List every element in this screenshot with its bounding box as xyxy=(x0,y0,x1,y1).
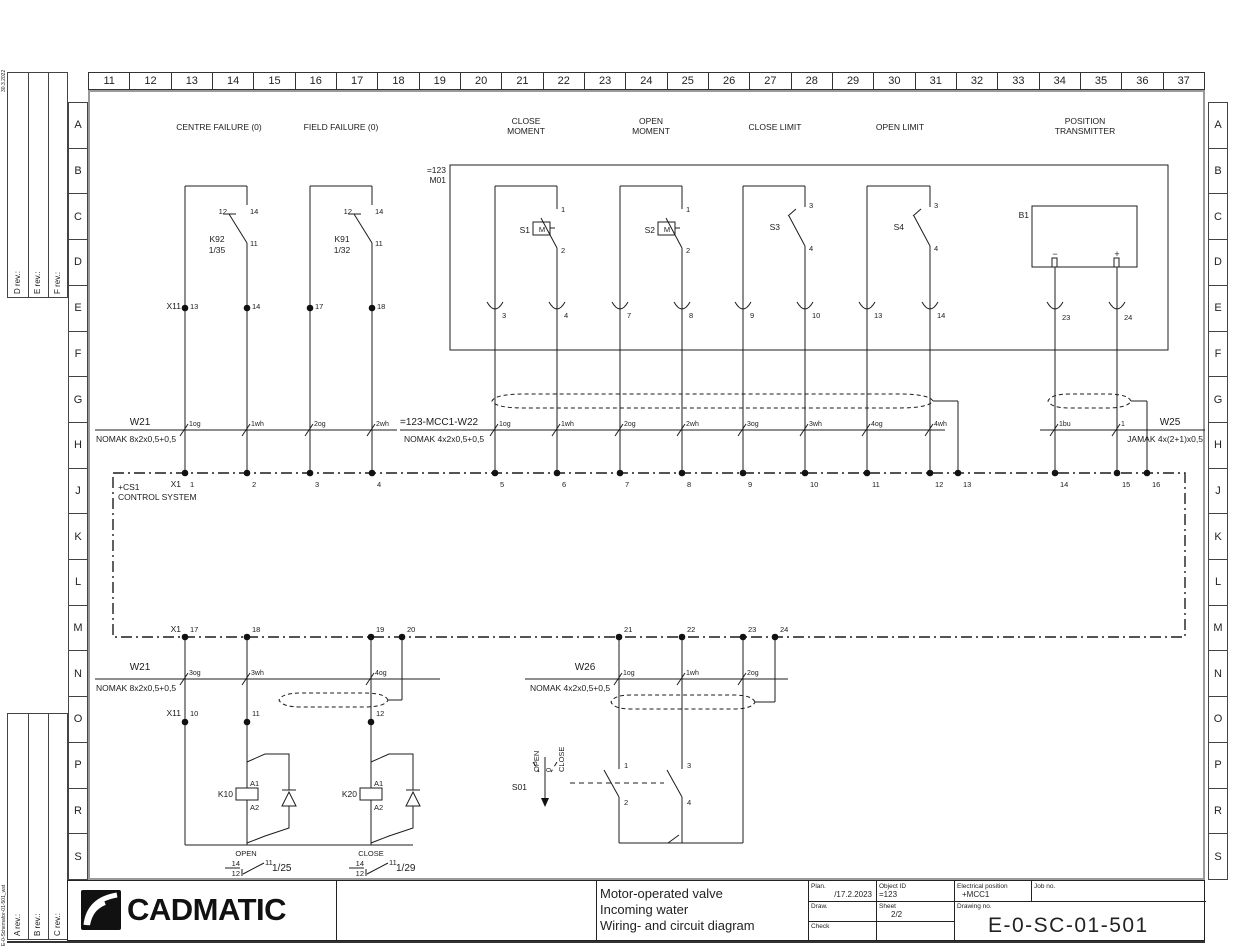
diagram-label: + xyxy=(1114,249,1119,259)
divider xyxy=(596,881,597,942)
k10-coil xyxy=(236,788,258,800)
diagram-label: S2 xyxy=(645,225,656,235)
diagram-label: 18 xyxy=(252,625,260,634)
diagram-label: F rev.: xyxy=(53,272,62,294)
s4-switch xyxy=(867,186,930,292)
terminal-dot xyxy=(369,305,376,312)
divider xyxy=(808,901,1206,902)
diagram-label: 3 xyxy=(934,201,938,210)
diagram-label: 12 xyxy=(232,869,240,878)
diagram-label: 2og xyxy=(314,421,326,428)
diagram-label: 4 xyxy=(809,244,813,253)
control-system-boundary xyxy=(113,473,1185,637)
diagram-label: B1 xyxy=(1019,210,1030,220)
diagram-label: C rev.: xyxy=(53,913,62,936)
diagram-label: 1/29 xyxy=(396,863,416,874)
diagram-label: OPEN xyxy=(639,116,663,126)
diagram-label: A2 xyxy=(374,803,383,812)
diagram-label: S3 xyxy=(770,222,781,232)
terminal-dot xyxy=(244,719,251,726)
diagram-label: 4 xyxy=(564,311,568,320)
diagram-label: 7 xyxy=(625,480,629,489)
diagram-label: NOMAK 8x2x0,5+0,5 xyxy=(96,683,176,693)
diagram-label: 14 xyxy=(250,207,258,216)
terminal-dot xyxy=(182,470,189,477)
diagram-label: CONTROL SYSTEM xyxy=(118,492,197,502)
diagram-label: 3og xyxy=(189,670,201,677)
divider xyxy=(1031,881,1032,901)
lower-wiring xyxy=(185,637,743,845)
b1-leads xyxy=(1055,267,1117,292)
diagram-label: FIELD FAILURE (0) xyxy=(304,122,379,132)
diagram-label: 15 xyxy=(1122,480,1130,489)
diagram-label: X11 xyxy=(167,301,182,311)
sheet-value: 2/2 xyxy=(891,910,902,919)
diagram-label: 4og xyxy=(871,421,883,428)
diagram-label: 13 xyxy=(190,302,198,311)
cadmatic-logo: CADMATIC xyxy=(81,890,286,930)
diagram-label: 10 xyxy=(190,709,198,718)
diagram-label: 16 xyxy=(1152,480,1160,489)
diagram-label: 13 xyxy=(963,480,971,489)
diagram-label: 2 xyxy=(561,246,565,255)
diagram-label: W25 xyxy=(1160,417,1181,428)
diagram-label: CLOSE xyxy=(512,116,541,126)
diagram-label: 4 xyxy=(377,480,381,489)
diagram-label: E rev.: xyxy=(33,271,42,294)
diagram-label: 20 xyxy=(407,625,415,634)
diagram-label: B rev.: xyxy=(33,913,42,936)
k20-diode-branch xyxy=(371,754,413,843)
diagram-label: MOMENT xyxy=(632,126,670,136)
cadmatic-logo-icon xyxy=(81,890,121,930)
diagram-label: 0 xyxy=(544,768,553,772)
diagram-label: 7 xyxy=(627,311,631,320)
drawing-no-value: E-0-SC-01-501 xyxy=(988,914,1149,938)
s2-switch xyxy=(620,186,682,292)
diagram-label: 2 xyxy=(686,246,690,255)
diagram-label: 3 xyxy=(687,761,691,770)
diagram-label: 14 xyxy=(375,207,383,216)
diagram-label: POSITION xyxy=(1065,116,1106,126)
diagram-label: 17 xyxy=(190,625,198,634)
diagram-label: 1wh xyxy=(686,670,699,677)
terminal-dot xyxy=(307,470,314,477)
diagram-label: A rev.: xyxy=(13,914,22,936)
k10-diode-triangle xyxy=(282,792,296,806)
diagram-label: 23 xyxy=(748,625,756,634)
diagram-label: 19 xyxy=(376,625,384,634)
diagram-label: CLOSE LIMIT xyxy=(749,122,802,132)
diagram-label: 1 xyxy=(686,205,690,214)
diagram-label: 11 xyxy=(250,239,258,248)
diagram-label: 1 xyxy=(190,480,194,489)
diagram-label: W26 xyxy=(575,662,596,673)
diagram-label: 2 xyxy=(624,798,628,807)
s01-lever-arrowhead xyxy=(541,798,549,807)
terminal-dot xyxy=(772,634,779,641)
diagram-label: =123 xyxy=(427,165,446,175)
diagram-label: JAMAK 4x(2+1)x0,5 xyxy=(1127,434,1203,444)
diagram-label: 2wh xyxy=(376,421,389,428)
diagram-label: 14 xyxy=(356,859,364,868)
terminal-dot xyxy=(368,719,375,726)
diagram-label: 24 xyxy=(1124,313,1132,322)
motor-unit-box xyxy=(450,165,1168,350)
diagram-label: 8 xyxy=(689,311,693,320)
diagram-label: 1og xyxy=(623,670,635,677)
diagram-label: +CS1 xyxy=(118,482,140,492)
w21-lower-shield xyxy=(279,693,388,707)
diagram-label: 24 xyxy=(780,625,788,634)
diagram-labels: CENTRE FAILURE (0)FIELD FAILURE (0)CLOSE… xyxy=(1,70,1203,946)
diagram-label: 14 xyxy=(937,311,945,320)
diagram-label: 3 xyxy=(809,201,813,210)
diagram-label: 22 xyxy=(687,625,695,634)
diagram-label: 14 xyxy=(252,302,260,311)
diagram-label: 8 xyxy=(687,480,691,489)
circuit-schematic: CENTRE FAILURE (0)FIELD FAILURE (0)CLOSE… xyxy=(0,0,1240,949)
diagram-label: X1 xyxy=(171,479,182,489)
diagram-label: NOMAK 4x2x0,5+0,5 xyxy=(404,434,484,444)
diagram-label: 1 xyxy=(624,761,628,770)
draw-label: Draw. xyxy=(811,903,828,910)
diagram-label: 3 xyxy=(502,311,506,320)
terminal-dot xyxy=(368,634,375,641)
electrical-position-label: Electrical position xyxy=(957,883,1008,890)
diagram-label: 10 xyxy=(810,480,818,489)
diagram-label: 1/25 xyxy=(272,863,292,874)
diagram-label: =123-MCC1-W22 xyxy=(400,417,479,428)
diagram-label: 1 xyxy=(561,205,565,214)
s01-return-bus xyxy=(619,835,743,843)
diagram-label: 9 xyxy=(748,480,752,489)
divider xyxy=(336,881,337,942)
diagram-label: 30.3.2022 xyxy=(1,70,7,92)
drawing-description: Motor-operated valveIncoming waterWiring… xyxy=(600,886,755,934)
diagram-label: CLOSE xyxy=(557,747,566,772)
sheet-label: Sheet xyxy=(879,903,896,910)
plan-label: Plan. xyxy=(811,883,826,890)
diagram-label: 11 xyxy=(375,239,383,248)
diagram-label: 4 xyxy=(687,798,691,807)
diagram-label: D rev.: xyxy=(13,271,22,294)
plan-value: /17.2.2023 xyxy=(808,890,872,899)
diagram-label: 3og xyxy=(747,421,759,428)
diagram-label: OPEN xyxy=(235,849,256,858)
diagram-label: 1/32 xyxy=(334,245,351,255)
diagram-label: 14 xyxy=(232,859,240,868)
k20-coil xyxy=(360,788,382,800)
w25-shield xyxy=(1048,394,1131,408)
terminal-dot xyxy=(182,305,189,312)
diagram-label: 3wh xyxy=(809,421,822,428)
drawing-no-label: Drawing no. xyxy=(957,903,992,910)
terminal-dot xyxy=(307,305,314,312)
diagram-label: 11 xyxy=(252,709,260,718)
diagram-label: 11 xyxy=(872,480,880,489)
diagram-label: 12 xyxy=(344,207,352,216)
generated-geometry xyxy=(180,291,1150,725)
diagram-label: 4og xyxy=(375,670,387,677)
diagram-label: 13 xyxy=(874,311,882,320)
w22-shield-drain xyxy=(933,401,958,473)
terminal-dot xyxy=(369,470,376,477)
diagram-label: 4wh xyxy=(934,421,947,428)
description-line: Incoming water xyxy=(600,902,755,918)
diagram-label: 1wh xyxy=(251,421,264,428)
terminal-dot xyxy=(182,634,189,641)
diagram-label: 10 xyxy=(812,311,820,320)
divider xyxy=(876,881,877,942)
diagram-label: − xyxy=(1052,249,1057,259)
description-line: Wiring- and circuit diagram xyxy=(600,918,755,934)
diagram-label: 3wh xyxy=(251,670,264,677)
diagram-label: OPEN LIMIT xyxy=(876,122,924,132)
object-id-value: =123 xyxy=(879,890,897,899)
sheet-bottom-edge xyxy=(7,941,1205,943)
k10-diode-branch xyxy=(247,754,289,843)
s1-switch xyxy=(495,186,557,292)
terminal-dot xyxy=(679,634,686,641)
diagram-label: 12 xyxy=(935,480,943,489)
diagram-label: M xyxy=(539,225,545,234)
diagram-label: 4 xyxy=(934,244,938,253)
diagram-label: 12 xyxy=(219,207,227,216)
terminal-dot xyxy=(244,305,251,312)
diagram-label: M xyxy=(664,225,670,234)
diagram-label: NOMAK 4x2x0,5+0,5 xyxy=(530,683,610,693)
diagram-label: S1 xyxy=(520,225,531,235)
k20-diode-triangle xyxy=(406,792,420,806)
object-id-label: Object ID xyxy=(879,883,906,890)
terminal-dot xyxy=(955,470,962,477)
diagram-label: A2 xyxy=(250,803,259,812)
diagram-label: 1/35 xyxy=(209,245,226,255)
diagram-label: 1og xyxy=(499,421,511,428)
divider xyxy=(808,921,954,922)
diagram-label: A1 xyxy=(250,779,259,788)
diagram-label: 18 xyxy=(377,302,385,311)
diagram-label: 21 xyxy=(624,625,632,634)
w21-lower-shield-drain xyxy=(388,637,402,700)
diagram-label: X1 xyxy=(171,624,182,634)
diagram-label: A1 xyxy=(374,779,383,788)
terminal-dot xyxy=(399,634,406,641)
terminal-dot xyxy=(616,634,623,641)
diagram-label: CENTRE FAILURE (0) xyxy=(176,122,262,132)
diagram-label: 17 xyxy=(315,302,323,311)
w26-shield xyxy=(611,695,755,709)
diagram-label: 1wh xyxy=(561,421,574,428)
terminal-dot xyxy=(740,634,747,641)
description-line: Motor-operated valve xyxy=(600,886,755,902)
terminal-dot xyxy=(244,634,251,641)
diagram-label: 1 xyxy=(1121,421,1125,428)
diagram-label: K10 xyxy=(218,789,233,799)
terminal-dot xyxy=(244,470,251,477)
diagram-label: OPEN xyxy=(532,751,541,772)
diagram-label: 1bu xyxy=(1059,421,1071,428)
diagram-label: 9 xyxy=(750,311,754,320)
diagram-label: 23 xyxy=(1062,313,1070,322)
diagram-label: NOMAK 8x2x0,5+0,5 xyxy=(96,434,176,444)
diagram-label: TRANSMITTER xyxy=(1055,126,1115,136)
cadmatic-logo-text: CADMATIC xyxy=(127,892,286,928)
diagram-label: W21 xyxy=(130,417,151,428)
diagram-label: 12 xyxy=(356,869,364,878)
diagram-label: K92 xyxy=(209,234,224,244)
diagram-label: 2og xyxy=(747,670,759,677)
job-no-label: Job no. xyxy=(1034,883,1055,890)
electrical-position-value: +MCC1 xyxy=(962,890,989,899)
diagram-label: 5 xyxy=(500,480,504,489)
title-block: CADMATIC Motor-operated valveIncoming wa… xyxy=(67,880,1205,941)
terminal-dot xyxy=(182,719,189,726)
drawing-sheet: 1112131415161718192021222324252627282930… xyxy=(0,0,1240,949)
b1-minus-terminal xyxy=(1052,258,1057,267)
b1-plus-terminal xyxy=(1114,258,1119,267)
diagram-label: MOMENT xyxy=(507,126,545,136)
diagram-label: K91 xyxy=(334,234,349,244)
diagram-label: W21 xyxy=(130,662,151,673)
diagram-label: X11 xyxy=(167,708,182,718)
diagram-label: CLOSE xyxy=(358,849,383,858)
diagram-label: 1og xyxy=(189,421,201,428)
diagram-label: K20 xyxy=(342,789,357,799)
diagram-label: E-0-Schemafor-01-501_wst xyxy=(1,884,7,946)
diagram-label: 12 xyxy=(376,709,384,718)
b1-transmitter-box xyxy=(1032,206,1137,267)
diagram-label: S01 xyxy=(512,782,527,792)
diagram-label: 14 xyxy=(1060,480,1068,489)
terminal-dot xyxy=(1144,470,1151,477)
s3-switch xyxy=(743,186,805,292)
diagram-label: M01 xyxy=(429,175,446,185)
diagram-label: S4 xyxy=(894,222,905,232)
check-label: Check xyxy=(811,923,829,930)
diagram-label: 2og xyxy=(624,421,636,428)
divider xyxy=(954,881,955,942)
diagram-label: 3 xyxy=(315,480,319,489)
diagram-label: 6 xyxy=(562,480,566,489)
diagram-label: 2 xyxy=(252,480,256,489)
diagram-label: 2wh xyxy=(686,421,699,428)
